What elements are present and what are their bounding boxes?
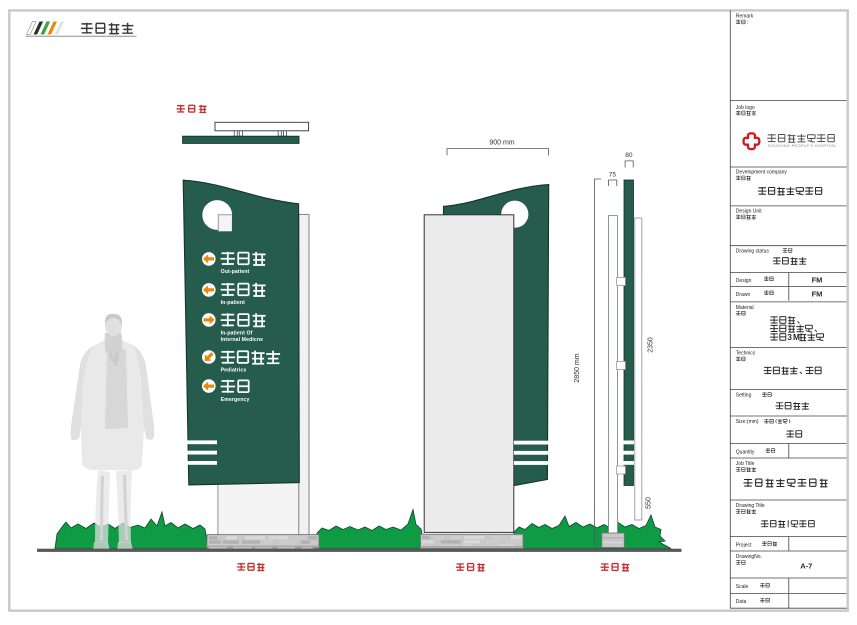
svg-text:Design: Design <box>736 278 752 284</box>
svg-text:Drawing status: Drawing status <box>736 249 770 255</box>
svg-text:2350: 2350 <box>648 337 655 353</box>
svg-text:DrawingNo.: DrawingNo. <box>736 554 762 560</box>
svg-text:Drawing Title: Drawing Title <box>736 503 765 509</box>
svg-text:3: 3 <box>787 333 792 342</box>
svg-text:2850 mm: 2850 mm <box>574 353 581 382</box>
svg-text:M: M <box>793 333 800 342</box>
svg-text:Data: Data <box>736 599 747 605</box>
svg-text:Out-patient: Out-patient <box>221 269 250 275</box>
svg-text:Remark: Remark <box>736 14 754 20</box>
svg-text:Drawn: Drawn <box>736 292 751 298</box>
svg-text:Development company: Development company <box>736 170 788 176</box>
svg-text:FM: FM <box>812 276 823 285</box>
svg-text:900 mm: 900 mm <box>489 140 514 147</box>
svg-text:In-patient Of: In-patient Of <box>221 330 253 336</box>
svg-text:Job Title: Job Title <box>736 461 755 467</box>
svg-text:SOUSONG PEOPLE'S HOSPITAL: SOUSONG PEOPLE'S HOSPITAL <box>768 143 837 148</box>
svg-text:75: 75 <box>609 172 617 179</box>
svg-text:FM: FM <box>812 290 823 299</box>
svg-text:Emergency: Emergency <box>221 397 250 403</box>
svg-text:Job logo: Job logo <box>736 105 755 111</box>
svg-text:Technics: Technics <box>736 351 756 357</box>
svg-text:In-patient: In-patient <box>221 300 246 306</box>
svg-text:Setting: Setting <box>736 393 752 399</box>
svg-text:Pediatrics: Pediatrics <box>221 368 247 374</box>
svg-text:Internal Medicne: Internal Medicne <box>221 337 264 343</box>
svg-text:Material: Material <box>736 305 754 311</box>
svg-text:80: 80 <box>625 152 633 159</box>
svg-text:A-7: A-7 <box>800 561 812 570</box>
svg-text:Design Unit: Design Unit <box>736 209 762 215</box>
svg-text:550: 550 <box>645 497 652 509</box>
svg-text:Quantity: Quantity <box>736 450 755 456</box>
svg-text:Size:(mm): Size:(mm) <box>736 419 759 425</box>
svg-text:Scale: Scale <box>736 584 749 590</box>
svg-text:Project: Project <box>736 543 752 549</box>
